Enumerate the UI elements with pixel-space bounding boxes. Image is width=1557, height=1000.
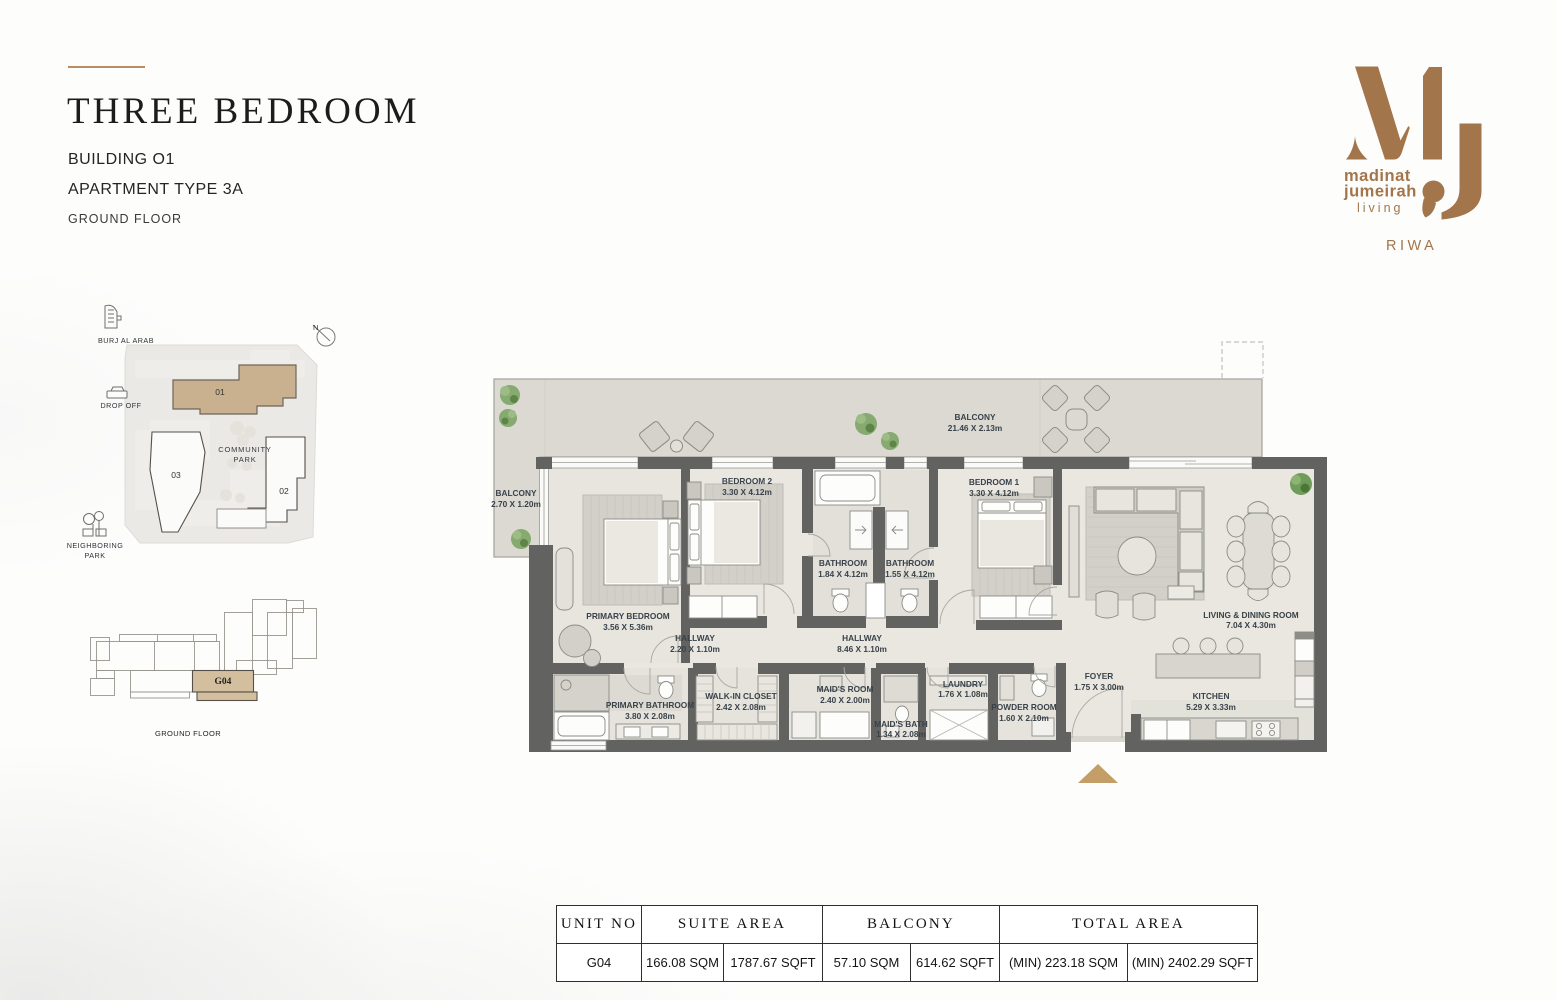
svg-text:3.80 X 2.08m: 3.80 X 2.08m bbox=[625, 711, 675, 721]
svg-text:1.84 X 4.12m: 1.84 X 4.12m bbox=[818, 569, 868, 579]
svg-text:COMMUNITY: COMMUNITY bbox=[218, 445, 271, 454]
svg-text:2.40 X 2.00m: 2.40 X 2.00m bbox=[820, 695, 870, 705]
svg-text:WALK-IN CLOSET: WALK-IN CLOSET bbox=[705, 691, 776, 701]
svg-text:2.70 X 1.20m: 2.70 X 1.20m bbox=[491, 499, 541, 509]
svg-text:LAUNDRY: LAUNDRY bbox=[943, 679, 984, 689]
svg-text:living: living bbox=[1357, 201, 1404, 215]
svg-text:HALLWAY: HALLWAY bbox=[842, 633, 882, 643]
svg-text:G04: G04 bbox=[215, 677, 232, 687]
svg-text:3.30 X 4.12m: 3.30 X 4.12m bbox=[722, 487, 772, 497]
svg-text:PARK: PARK bbox=[84, 551, 105, 560]
svg-text:BEDROOM 1: BEDROOM 1 bbox=[969, 477, 1020, 487]
svg-text:N: N bbox=[313, 323, 318, 332]
svg-text:PRIMARY BEDROOM: PRIMARY BEDROOM bbox=[586, 611, 670, 621]
svg-text:BATHROOM: BATHROOM bbox=[886, 558, 934, 568]
svg-text:GROUND FLOOR: GROUND FLOOR bbox=[155, 729, 221, 738]
svg-text:KITCHEN: KITCHEN bbox=[1193, 691, 1230, 701]
svg-text:BATHROOM: BATHROOM bbox=[819, 558, 867, 568]
svg-text:21.46 X 2.13m: 21.46 X 2.13m bbox=[948, 423, 1002, 433]
svg-text:1.34 X 2.08m: 1.34 X 2.08m bbox=[876, 729, 926, 739]
svg-text:DROP OFF: DROP OFF bbox=[100, 401, 141, 410]
svg-text:1.76 X 1.08m: 1.76 X 1.08m bbox=[938, 689, 988, 699]
svg-text:LIVING & DINING ROOM: LIVING & DINING ROOM bbox=[1203, 610, 1299, 620]
svg-text:01: 01 bbox=[215, 387, 225, 397]
svg-text:BEDROOM 2: BEDROOM 2 bbox=[722, 476, 773, 486]
svg-text:MAID'S ROOM: MAID'S ROOM bbox=[817, 684, 874, 694]
svg-text:7.04 X 4.30m: 7.04 X 4.30m bbox=[1226, 620, 1276, 630]
svg-text:HALLWAY: HALLWAY bbox=[675, 633, 715, 643]
svg-text:3.30 X 4.12m: 3.30 X 4.12m bbox=[969, 488, 1019, 498]
svg-text:5.29 X 3.33m: 5.29 X 3.33m bbox=[1186, 702, 1236, 712]
svg-text:jumeirah: jumeirah bbox=[1343, 183, 1417, 201]
svg-text:1.75 X 3.00m: 1.75 X 3.00m bbox=[1074, 682, 1124, 692]
svg-text:02: 02 bbox=[279, 486, 289, 496]
svg-text:NEIGHBORING: NEIGHBORING bbox=[67, 541, 124, 550]
svg-text:2.20 X 1.10m: 2.20 X 1.10m bbox=[670, 644, 720, 654]
svg-text:PRIMARY BATHROOM: PRIMARY BATHROOM bbox=[606, 700, 694, 710]
svg-text:BALCONY: BALCONY bbox=[495, 488, 536, 498]
svg-text:BALCONY: BALCONY bbox=[954, 412, 995, 422]
svg-text:BURJ AL ARAB: BURJ AL ARAB bbox=[98, 336, 154, 345]
svg-text:POWDER ROOM: POWDER ROOM bbox=[991, 702, 1057, 712]
svg-text:3.56 X 5.36m: 3.56 X 5.36m bbox=[603, 622, 653, 632]
svg-text:RIWA: RIWA bbox=[1386, 238, 1437, 254]
svg-text:03: 03 bbox=[171, 470, 181, 480]
svg-text:8.46 X 1.10m: 8.46 X 1.10m bbox=[837, 644, 887, 654]
svg-text:1.55 X 4.12m: 1.55 X 4.12m bbox=[885, 569, 935, 579]
svg-text:PARK: PARK bbox=[233, 455, 256, 464]
svg-text:2.42 X 2.08m: 2.42 X 2.08m bbox=[716, 702, 766, 712]
svg-text:MAID'S BATH: MAID'S BATH bbox=[874, 719, 927, 729]
svg-text:FOYER: FOYER bbox=[1085, 671, 1114, 681]
svg-text:1.60 X 2.10m: 1.60 X 2.10m bbox=[999, 713, 1049, 723]
